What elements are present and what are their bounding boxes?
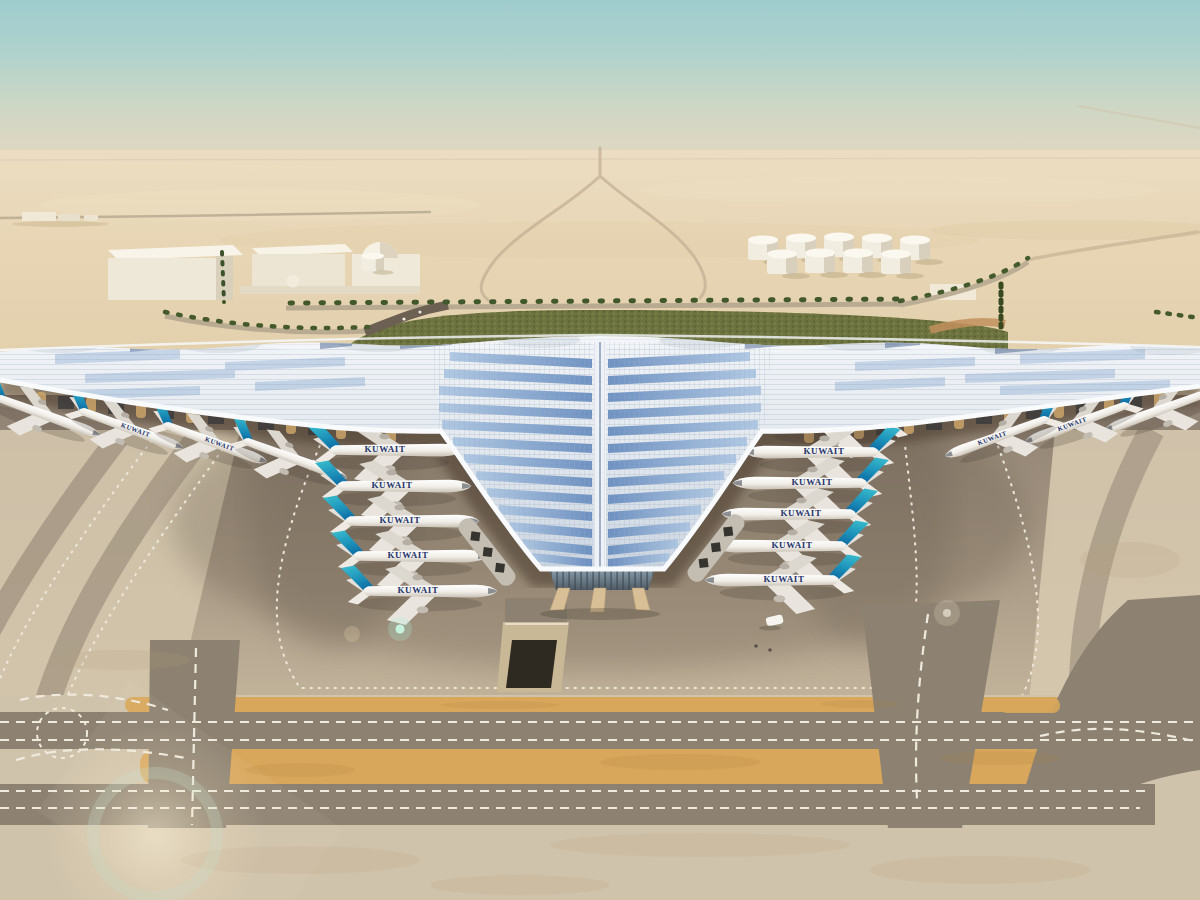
airline-title: KUWAIT <box>763 574 804 584</box>
airline-title: KUWAIT <box>780 508 821 518</box>
airline-title: KUWAIT <box>791 477 832 487</box>
airline-title: KUWAIT <box>803 446 844 456</box>
airline-title: KUWAIT <box>771 540 812 550</box>
ground-crew-person <box>768 648 772 652</box>
terminal-front-facade <box>540 566 660 620</box>
scene-canvas: KUWAIT KUWAIT KUWAIT KUWAIT KUWAIT KUWAI… <box>0 0 1200 900</box>
airline-title: KUWAIT <box>397 585 438 595</box>
airline-title: KUWAIT <box>371 480 412 490</box>
airport-aerial-rendering: KUWAIT KUWAIT KUWAIT KUWAIT KUWAIT KUWAI… <box>0 0 1200 900</box>
flare-dot-warm <box>943 609 951 617</box>
airline-title: KUWAIT <box>379 515 420 525</box>
airline-title: KUWAIT <box>364 444 405 454</box>
airline-title: KUWAIT <box>387 550 428 560</box>
ground-crew-person <box>754 644 758 648</box>
ramp-opening <box>506 640 557 688</box>
flare-dot-green <box>396 625 405 634</box>
small-dome <box>287 275 300 288</box>
marker-post <box>836 621 839 628</box>
